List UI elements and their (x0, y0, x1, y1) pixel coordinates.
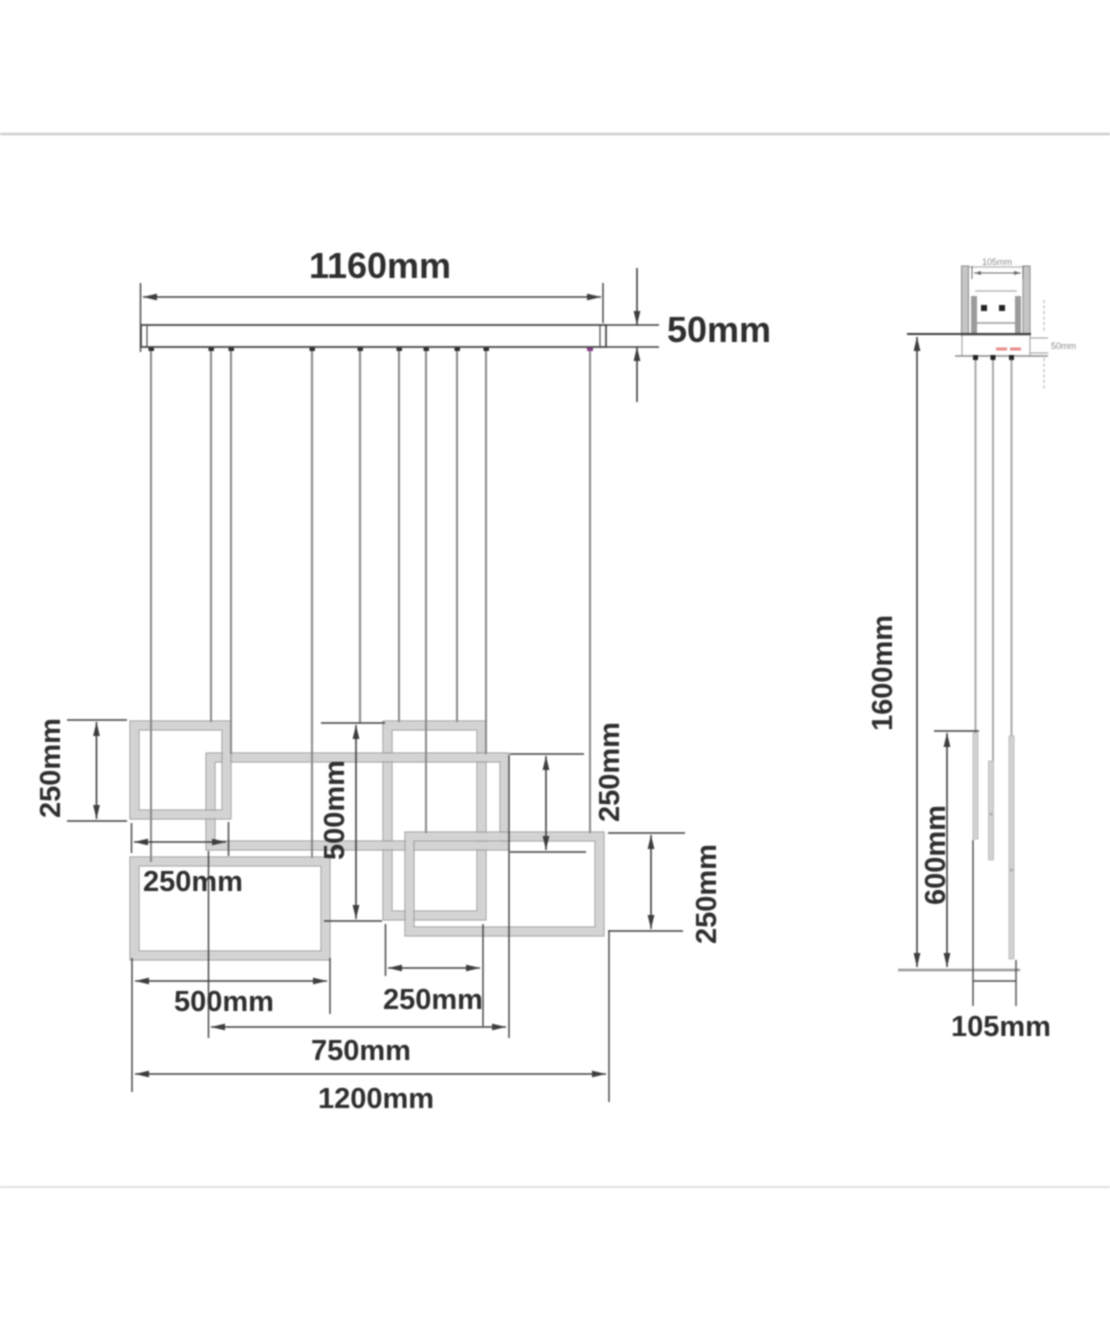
svg-text:1200mm: 1200mm (318, 1083, 434, 1115)
svg-text:250mm: 250mm (594, 722, 626, 822)
svg-text:250mm: 250mm (383, 984, 483, 1016)
svg-text:250mm: 250mm (143, 866, 243, 898)
svg-text:50mm: 50mm (1051, 341, 1076, 351)
svg-text:600mm: 600mm (920, 805, 952, 905)
svg-text:500mm: 500mm (174, 986, 274, 1018)
svg-text:250mm: 250mm (691, 844, 723, 944)
svg-text:250mm: 250mm (35, 718, 67, 818)
svg-text:1600mm: 1600mm (867, 615, 899, 731)
svg-text:105mm: 105mm (951, 1011, 1051, 1043)
svg-text:500mm: 500mm (319, 760, 351, 860)
svg-text:750mm: 750mm (311, 1035, 411, 1067)
svg-text:50mm: 50mm (667, 309, 771, 350)
svg-text:105mm: 105mm (982, 257, 1012, 267)
svg-text:1160mm: 1160mm (309, 245, 451, 286)
